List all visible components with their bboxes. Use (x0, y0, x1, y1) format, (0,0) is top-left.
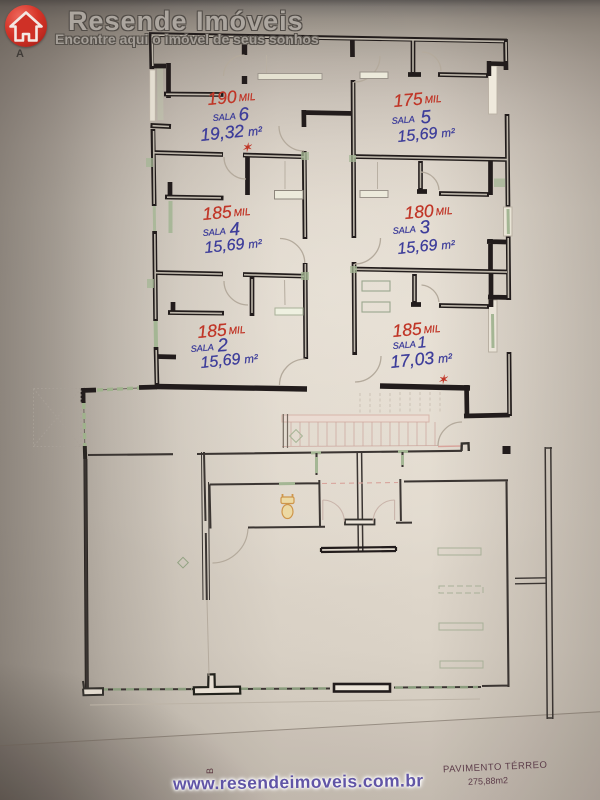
svg-text:185MIL: 185MIL (202, 200, 251, 224)
svg-text:✶: ✶ (241, 140, 253, 155)
svg-text:15,69m²: 15,69m² (204, 234, 264, 257)
svg-text:15,69m²: 15,69m² (397, 235, 457, 258)
svg-text:175MIL: 175MIL (393, 87, 442, 111)
svg-text:19,32m²: 19,32m² (199, 119, 264, 145)
svg-text:190MIL: 190MIL (207, 85, 256, 109)
svg-text:15,69m²: 15,69m² (397, 123, 457, 146)
svg-text:✶: ✶ (437, 372, 449, 387)
